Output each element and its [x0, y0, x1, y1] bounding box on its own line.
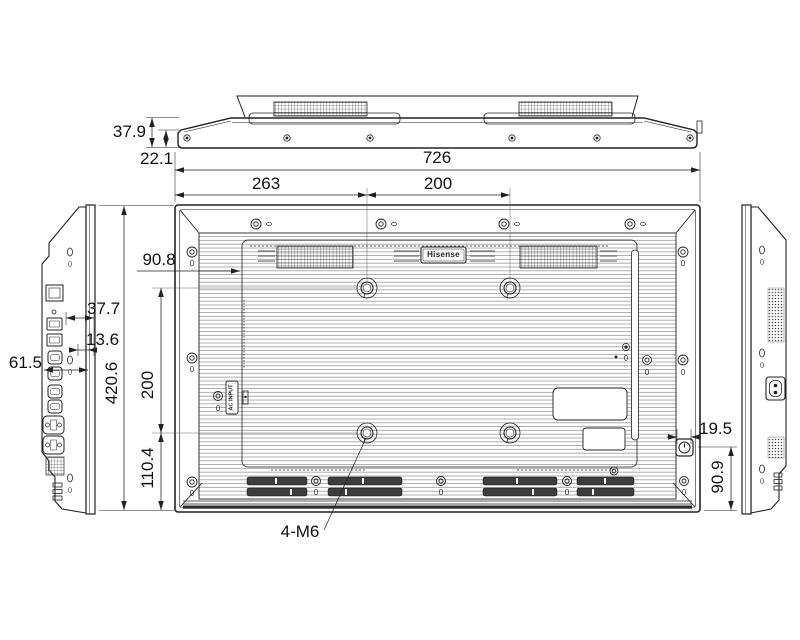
- side-vent: [46, 457, 64, 475]
- rear-vent-left: [277, 246, 353, 268]
- dimension-drawing: 37.9 22.1 726 263 200 90.8 37.7 13.6 61.…: [0, 0, 800, 640]
- ac-inlet: [766, 377, 785, 400]
- right-side-view: [742, 205, 786, 514]
- dim-overall-width: 726: [407, 149, 467, 166]
- power-button: [676, 439, 693, 456]
- dim-vesa-offset-left: 263: [236, 175, 296, 192]
- left-side-view: [42, 205, 95, 514]
- dim-vesa-spacing-v: 200: [139, 355, 155, 415]
- rear-vent-right: [520, 246, 597, 268]
- side-vent: [768, 288, 784, 342]
- vesa-screw-callout: 4-M6: [274, 523, 326, 540]
- dim-vesa-offset-bottom: 110.4: [139, 438, 155, 498]
- rating-label: [553, 388, 627, 420]
- side-vent: [768, 437, 784, 458]
- dim-port-inset-a: 37.7: [87, 300, 120, 317]
- dim-vesa-spacing-h: 200: [408, 175, 468, 192]
- dim-bezel-thickness: 22.1: [140, 150, 173, 167]
- top-view-screws: [184, 135, 693, 141]
- serial-label: [583, 428, 625, 450]
- dim-power-offset-bottom: 90.9: [709, 447, 725, 507]
- ac-input-label: AC INPUT: [227, 378, 238, 418]
- dim-top-thickness: 37.9: [104, 123, 146, 140]
- drawing-linework: [0, 0, 800, 640]
- dim-vesa-offset-top: 90.8: [139, 251, 179, 268]
- top-view: [178, 96, 702, 148]
- dim-power-inset: 19.5: [699, 420, 732, 437]
- dim-port-inset-b: 13.6: [86, 331, 119, 348]
- dim-overall-height: 420.6: [103, 353, 119, 413]
- brand-logo-text: Hisense: [421, 248, 466, 262]
- dim-side-depth: 61.5: [4, 354, 42, 371]
